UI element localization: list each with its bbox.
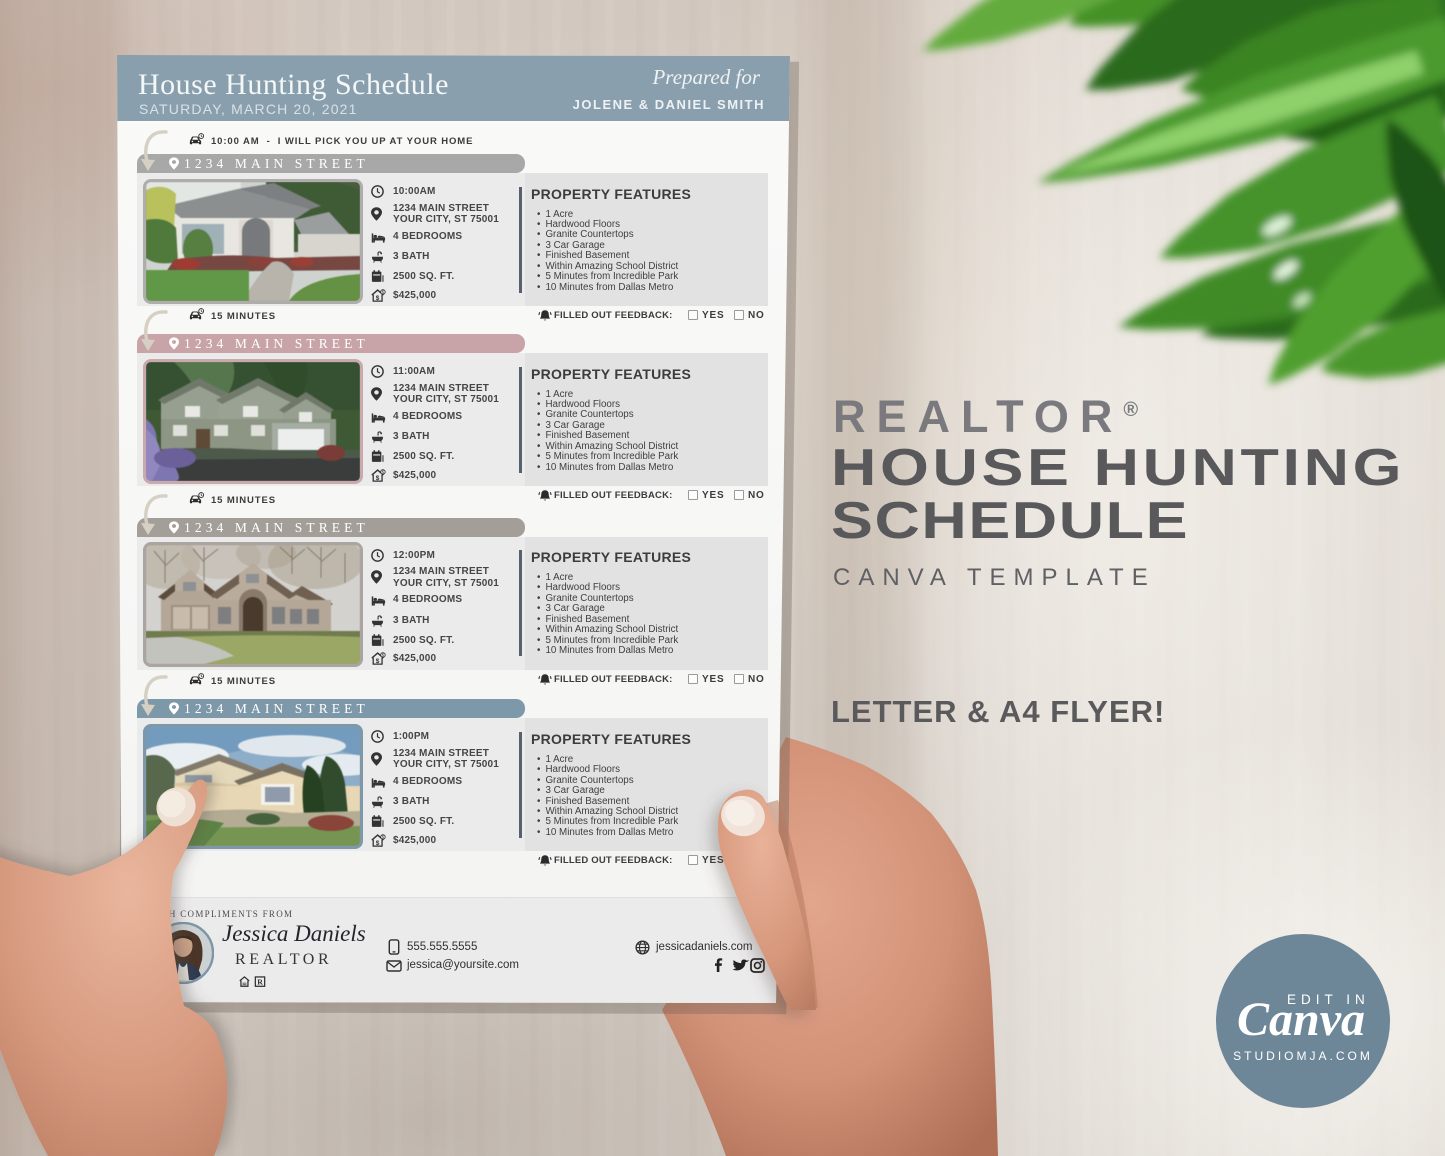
svg-text:$: $ [376,295,380,302]
svg-text:$: $ [376,658,380,665]
svg-text:$: $ [376,475,380,482]
